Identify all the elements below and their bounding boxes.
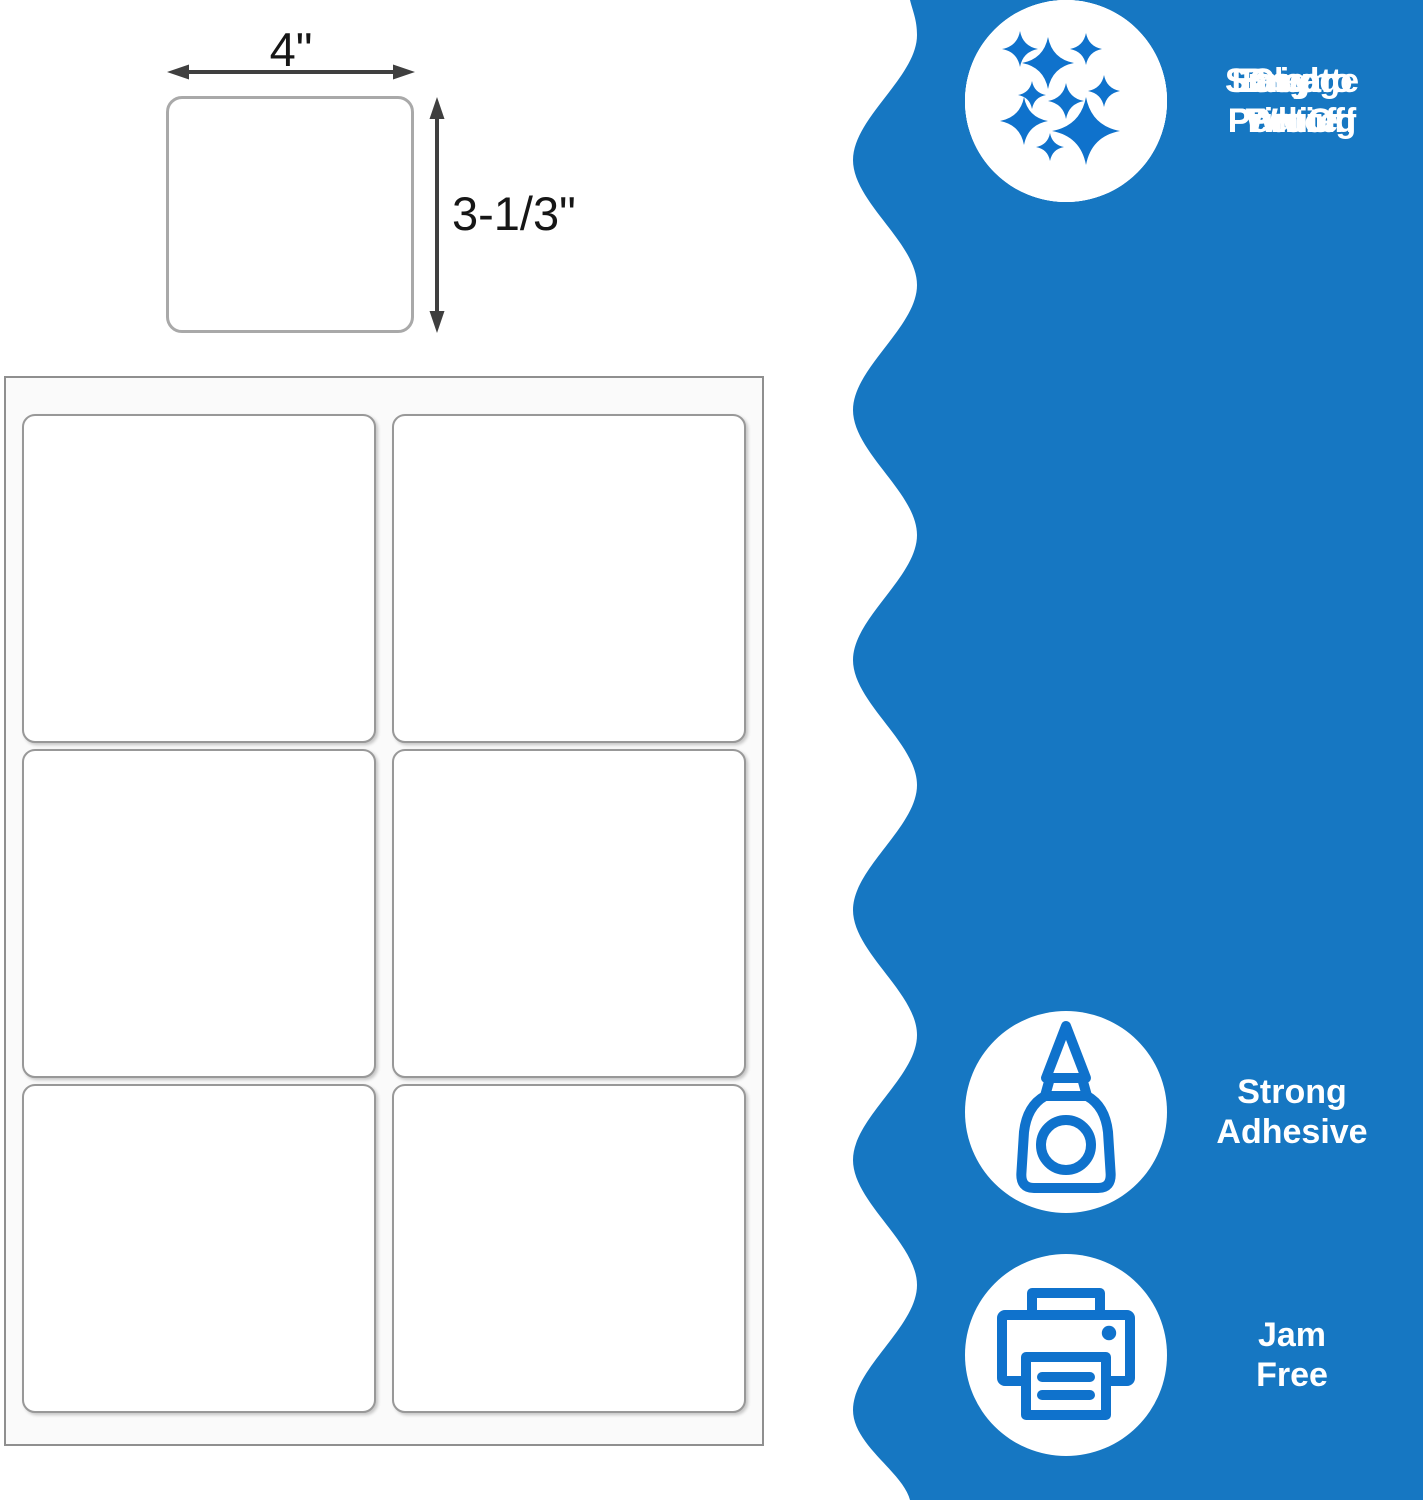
blank-label-cell <box>392 1084 746 1413</box>
feature-label: Strong Adhesive <box>1181 1072 1403 1152</box>
feature-label-line: Strong <box>1181 1072 1403 1112</box>
feature-bright-white: Bright White <box>965 0 1403 202</box>
feature-label-line: Bright <box>1181 61 1403 101</box>
blank-label-cell <box>392 749 746 1078</box>
blank-label-cell <box>22 749 376 1078</box>
feature-icon-circle <box>965 1254 1167 1456</box>
label-sheet <box>4 376 764 1446</box>
feature-label-line: Adhesive <box>1181 1112 1403 1152</box>
feature-label-line: White <box>1181 101 1403 141</box>
feature-icon-circle <box>965 1011 1167 1213</box>
feature-label: Bright White <box>1181 61 1403 141</box>
blank-label-cell <box>22 1084 376 1413</box>
feature-label-line: Jam <box>1181 1315 1403 1355</box>
label-size-diagram-box <box>166 96 414 333</box>
feature-jam-free: Jam Free <box>965 1254 1403 1456</box>
glue-bottle-icon <box>966 1012 1166 1212</box>
feature-strong-adhesive: Strong Adhesive <box>965 1011 1403 1213</box>
sparkles-icon <box>966 1 1166 201</box>
feature-label: Jam Free <box>1181 1315 1403 1395</box>
blank-label-cell <box>392 414 746 743</box>
feature-icon-circle <box>965 0 1167 202</box>
blank-label-cell <box>22 414 376 743</box>
height-dimension-arrow-icon <box>427 96 447 334</box>
height-dimension-label: 3-1/3" <box>452 190 576 237</box>
width-dimension-arrow-icon <box>166 62 416 82</box>
printer-icon <box>966 1255 1166 1455</box>
feature-label-line: Free <box>1181 1355 1403 1395</box>
